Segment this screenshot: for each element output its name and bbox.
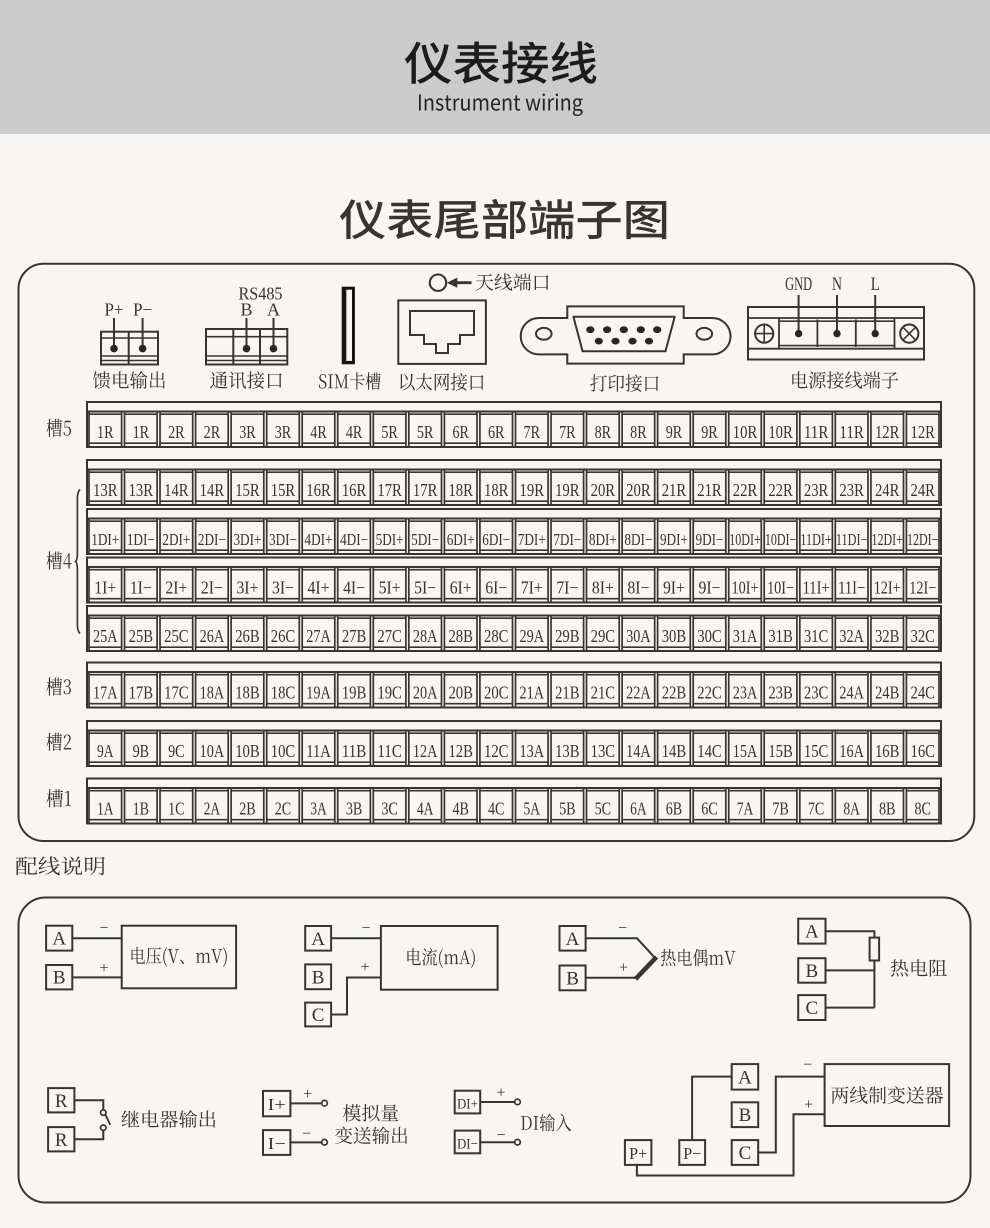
svg-text:24C: 24C: [910, 683, 935, 703]
svg-text:28B: 28B: [448, 626, 473, 646]
svg-text:23R: 23R: [839, 480, 864, 500]
svg-text:3I+: 3I+: [236, 578, 258, 598]
svg-text:7I+: 7I+: [521, 578, 543, 598]
svg-text:11C: 11C: [377, 741, 402, 761]
svg-text:A: A: [311, 929, 325, 950]
svg-text:6B: 6B: [666, 799, 683, 819]
svg-text:−: −: [496, 1127, 505, 1144]
svg-text:7C: 7C: [808, 799, 825, 819]
svg-text:B: B: [312, 967, 325, 988]
svg-text:1I−: 1I−: [130, 578, 152, 598]
svg-text:+: +: [804, 1097, 813, 1114]
svg-text:15B: 15B: [768, 741, 793, 761]
svg-text:3I−: 3I−: [272, 578, 294, 598]
svg-text:10I+: 10I+: [732, 578, 759, 598]
svg-text:9A: 9A: [97, 741, 114, 761]
svg-text:19R: 19R: [520, 480, 545, 500]
svg-text:19R: 19R: [555, 480, 580, 500]
svg-text:14R: 14R: [200, 480, 225, 500]
svg-text:12A: 12A: [413, 741, 438, 761]
svg-text:27A: 27A: [306, 626, 331, 646]
svg-text:4B: 4B: [452, 799, 469, 819]
svg-text:18R: 18R: [484, 480, 509, 500]
svg-text:32C: 32C: [910, 626, 935, 646]
svg-text:24R: 24R: [910, 480, 935, 500]
svg-text:24B: 24B: [875, 683, 900, 703]
svg-text:R: R: [55, 1130, 68, 1151]
svg-text:6DI−: 6DI−: [482, 530, 510, 549]
svg-text:10DI+: 10DI+: [729, 530, 761, 549]
svg-text:5DI−: 5DI−: [411, 530, 439, 549]
svg-text:30A: 30A: [626, 626, 651, 646]
svg-text:22R: 22R: [768, 480, 793, 500]
svg-text:10C: 10C: [271, 741, 296, 761]
svg-text:−: −: [302, 1125, 311, 1142]
svg-text:10A: 10A: [200, 741, 225, 761]
svg-text:4R: 4R: [310, 422, 327, 442]
svg-text:1A: 1A: [97, 799, 114, 819]
svg-text:5C: 5C: [595, 799, 612, 819]
svg-text:26B: 26B: [235, 626, 260, 646]
svg-text:27B: 27B: [342, 626, 367, 646]
svg-text:32B: 32B: [875, 626, 900, 646]
svg-text:I−: I−: [268, 1134, 286, 1153]
svg-text:P+: P+: [629, 1144, 647, 1163]
svg-text:7I−: 7I−: [556, 578, 578, 598]
svg-text:24R: 24R: [875, 480, 900, 500]
svg-text:8C: 8C: [914, 799, 931, 819]
svg-text:B: B: [806, 961, 819, 982]
svg-text:11R: 11R: [839, 422, 864, 442]
svg-text:14B: 14B: [662, 741, 687, 761]
svg-text:8R: 8R: [595, 422, 612, 442]
svg-text:6R: 6R: [452, 422, 469, 442]
svg-text:8I+: 8I+: [592, 578, 614, 598]
svg-text:6I+: 6I+: [450, 578, 472, 598]
svg-text:11A: 11A: [306, 741, 331, 761]
svg-text:30B: 30B: [662, 626, 687, 646]
svg-text:L: L: [871, 274, 880, 295]
svg-text:DI+: DI+: [457, 1097, 478, 1113]
svg-text:26A: 26A: [200, 626, 225, 646]
svg-text:1DI−: 1DI−: [127, 530, 155, 549]
svg-text:15A: 15A: [733, 741, 758, 761]
svg-text:19C: 19C: [377, 683, 402, 703]
svg-text:11R: 11R: [804, 422, 829, 442]
svg-text:20B: 20B: [448, 683, 473, 703]
svg-text:−: −: [361, 920, 370, 937]
svg-text:16C: 16C: [910, 741, 935, 761]
svg-text:A: A: [566, 929, 580, 950]
svg-text:26C: 26C: [271, 626, 296, 646]
svg-text:18A: 18A: [200, 683, 225, 703]
svg-text:17R: 17R: [377, 480, 402, 500]
svg-text:8DI+: 8DI+: [589, 530, 617, 549]
svg-text:4C: 4C: [488, 799, 505, 819]
svg-text:C: C: [806, 998, 819, 1019]
svg-text:P−: P−: [683, 1144, 701, 1163]
svg-text:7DI+: 7DI+: [518, 530, 546, 549]
svg-text:A: A: [267, 300, 280, 320]
svg-text:22A: 22A: [626, 683, 651, 703]
svg-text:8DI−: 8DI−: [624, 530, 652, 549]
svg-text:23B: 23B: [768, 683, 793, 703]
svg-text:8R: 8R: [630, 422, 647, 442]
svg-text:P+: P+: [105, 300, 124, 320]
svg-text:9B: 9B: [133, 741, 150, 761]
svg-text:5R: 5R: [381, 422, 398, 442]
svg-text:12DI+: 12DI+: [871, 530, 903, 549]
svg-text:14R: 14R: [164, 480, 189, 500]
svg-text:C: C: [739, 1143, 752, 1164]
svg-text:29C: 29C: [591, 626, 616, 646]
svg-text:4I+: 4I+: [308, 578, 330, 598]
svg-text:13R: 13R: [129, 480, 154, 500]
svg-text:12C: 12C: [484, 741, 509, 761]
svg-text:2R: 2R: [204, 422, 221, 442]
svg-text:13B: 13B: [555, 741, 580, 761]
svg-text:2I+: 2I+: [165, 578, 187, 598]
svg-text:+: +: [303, 1086, 312, 1103]
svg-text:18B: 18B: [235, 683, 260, 703]
svg-text:A: A: [805, 922, 819, 943]
svg-text:B: B: [53, 968, 66, 989]
svg-text:23C: 23C: [804, 683, 829, 703]
svg-text:23A: 23A: [733, 683, 758, 703]
svg-text:6DI+: 6DI+: [447, 530, 475, 549]
svg-text:5I−: 5I−: [414, 578, 436, 598]
svg-text:3R: 3R: [275, 422, 292, 442]
svg-text:10DI−: 10DI−: [765, 530, 797, 549]
svg-text:11DI+: 11DI+: [800, 530, 832, 549]
svg-text:12I−: 12I−: [909, 578, 936, 598]
svg-text:9C: 9C: [168, 741, 185, 761]
svg-text:27C: 27C: [377, 626, 402, 646]
svg-text:4R: 4R: [346, 422, 363, 442]
svg-text:2B: 2B: [239, 799, 256, 819]
svg-text:25A: 25A: [93, 626, 118, 646]
svg-text:3B: 3B: [346, 799, 363, 819]
svg-text:28C: 28C: [484, 626, 509, 646]
svg-text:R: R: [55, 1091, 68, 1112]
svg-text:22R: 22R: [733, 480, 758, 500]
svg-text:−: −: [99, 920, 108, 937]
svg-text:9I+: 9I+: [663, 578, 685, 598]
svg-text:8I−: 8I−: [627, 578, 649, 598]
svg-text:I+: I+: [268, 1095, 286, 1114]
svg-text:32A: 32A: [839, 626, 864, 646]
svg-text:6A: 6A: [630, 799, 647, 819]
svg-text:31C: 31C: [804, 626, 829, 646]
svg-text:20R: 20R: [626, 480, 651, 500]
svg-text:8A: 8A: [843, 799, 860, 819]
svg-text:18R: 18R: [448, 480, 473, 500]
svg-text:11B: 11B: [342, 741, 367, 761]
svg-text:4A: 4A: [417, 799, 434, 819]
svg-text:7R: 7R: [559, 422, 576, 442]
svg-text:B: B: [566, 968, 579, 989]
svg-text:31A: 31A: [733, 626, 758, 646]
svg-text:+: +: [99, 960, 108, 977]
svg-text:22C: 22C: [697, 683, 722, 703]
svg-text:GND: GND: [785, 274, 812, 295]
svg-text:+: +: [619, 960, 628, 977]
svg-text:5I+: 5I+: [379, 578, 401, 598]
svg-text:24A: 24A: [839, 683, 864, 703]
svg-text:16B: 16B: [875, 741, 900, 761]
svg-text:12I+: 12I+: [874, 578, 901, 598]
svg-text:17C: 17C: [164, 683, 189, 703]
svg-text:10I−: 10I−: [767, 578, 794, 598]
svg-text:21B: 21B: [555, 683, 580, 703]
svg-text:10R: 10R: [768, 422, 793, 442]
svg-text:16A: 16A: [839, 741, 864, 761]
svg-text:2DI+: 2DI+: [162, 530, 190, 549]
svg-text:19B: 19B: [342, 683, 367, 703]
svg-text:21R: 21R: [662, 480, 687, 500]
svg-text:5A: 5A: [524, 799, 541, 819]
svg-text:−: −: [618, 920, 627, 937]
svg-text:+: +: [496, 1085, 505, 1102]
svg-text:2DI−: 2DI−: [198, 530, 226, 549]
svg-text:6I−: 6I−: [485, 578, 507, 598]
svg-text:1DI+: 1DI+: [91, 530, 119, 549]
svg-text:10B: 10B: [235, 741, 260, 761]
svg-text:15R: 15R: [271, 480, 296, 500]
svg-text:9DI−: 9DI−: [695, 530, 723, 549]
svg-text:2R: 2R: [168, 422, 185, 442]
svg-text:25C: 25C: [164, 626, 189, 646]
svg-text:21A: 21A: [520, 683, 545, 703]
svg-text:6R: 6R: [488, 422, 505, 442]
svg-text:15R: 15R: [235, 480, 260, 500]
svg-text:A: A: [52, 929, 66, 950]
svg-text:1I+: 1I+: [94, 578, 116, 598]
svg-text:19A: 19A: [306, 683, 331, 703]
svg-text:3R: 3R: [239, 422, 256, 442]
svg-text:6C: 6C: [701, 799, 718, 819]
svg-text:11I−: 11I−: [838, 578, 865, 598]
svg-text:22B: 22B: [662, 683, 687, 703]
svg-text:29B: 29B: [555, 626, 580, 646]
svg-text:A: A: [738, 1067, 752, 1088]
svg-text:7A: 7A: [737, 799, 754, 819]
svg-text:16R: 16R: [342, 480, 367, 500]
svg-text:3DI+: 3DI+: [233, 530, 261, 549]
svg-text:11DI−: 11DI−: [836, 530, 868, 549]
svg-text:18C: 18C: [271, 683, 296, 703]
svg-text:20A: 20A: [413, 683, 438, 703]
svg-text:B: B: [240, 300, 252, 320]
svg-text:7DI−: 7DI−: [553, 530, 581, 549]
svg-text:14A: 14A: [626, 741, 651, 761]
svg-text:3A: 3A: [310, 799, 327, 819]
svg-text:1R: 1R: [133, 422, 150, 442]
svg-text:B: B: [739, 1105, 752, 1126]
svg-text:5DI+: 5DI+: [376, 530, 404, 549]
svg-text:3C: 3C: [381, 799, 398, 819]
svg-text:P−: P−: [133, 300, 152, 320]
svg-text:9R: 9R: [701, 422, 718, 442]
svg-text:4I−: 4I−: [343, 578, 365, 598]
svg-text:13A: 13A: [520, 741, 545, 761]
svg-text:10R: 10R: [733, 422, 758, 442]
svg-text:C: C: [312, 1005, 325, 1026]
svg-text:21C: 21C: [591, 683, 616, 703]
svg-text:17B: 17B: [129, 683, 154, 703]
svg-text:12R: 12R: [910, 422, 935, 442]
svg-text:9R: 9R: [666, 422, 683, 442]
svg-text:2A: 2A: [204, 799, 221, 819]
svg-text:9DI+: 9DI+: [660, 530, 688, 549]
svg-text:14C: 14C: [697, 741, 722, 761]
svg-text:12B: 12B: [448, 741, 473, 761]
svg-text:30C: 30C: [697, 626, 722, 646]
svg-text:−: −: [803, 1057, 812, 1074]
svg-text:21R: 21R: [697, 480, 722, 500]
svg-text:1R: 1R: [97, 422, 114, 442]
svg-text:15C: 15C: [804, 741, 829, 761]
svg-text:13C: 13C: [591, 741, 616, 761]
svg-text:12DI−: 12DI−: [907, 530, 939, 549]
svg-text:DI−: DI−: [457, 1136, 478, 1152]
svg-text:4DI+: 4DI+: [305, 530, 333, 549]
svg-text:11I+: 11I+: [803, 578, 830, 598]
svg-text:31B: 31B: [768, 626, 793, 646]
svg-text:2I−: 2I−: [201, 578, 223, 598]
svg-text:17R: 17R: [413, 480, 438, 500]
svg-text:29A: 29A: [520, 626, 545, 646]
svg-text:17A: 17A: [93, 683, 118, 703]
svg-text:5B: 5B: [559, 799, 576, 819]
svg-text:1B: 1B: [133, 799, 150, 819]
svg-text:4DI−: 4DI−: [340, 530, 368, 549]
svg-text:25B: 25B: [129, 626, 154, 646]
svg-text:13R: 13R: [93, 480, 118, 500]
svg-text:5R: 5R: [417, 422, 434, 442]
svg-text:12R: 12R: [875, 422, 900, 442]
svg-text:2C: 2C: [275, 799, 292, 819]
svg-text:7B: 7B: [772, 799, 789, 819]
svg-text:20R: 20R: [591, 480, 616, 500]
svg-text:23R: 23R: [804, 480, 829, 500]
svg-text:9I−: 9I−: [698, 578, 720, 598]
svg-text:3DI−: 3DI−: [269, 530, 297, 549]
svg-text:1C: 1C: [168, 799, 185, 819]
svg-text:16R: 16R: [306, 480, 331, 500]
svg-text:N: N: [832, 274, 842, 295]
svg-text:7R: 7R: [524, 422, 541, 442]
svg-text:8B: 8B: [879, 799, 896, 819]
svg-text:20C: 20C: [484, 683, 509, 703]
svg-text:+: +: [360, 959, 369, 976]
svg-text:28A: 28A: [413, 626, 438, 646]
